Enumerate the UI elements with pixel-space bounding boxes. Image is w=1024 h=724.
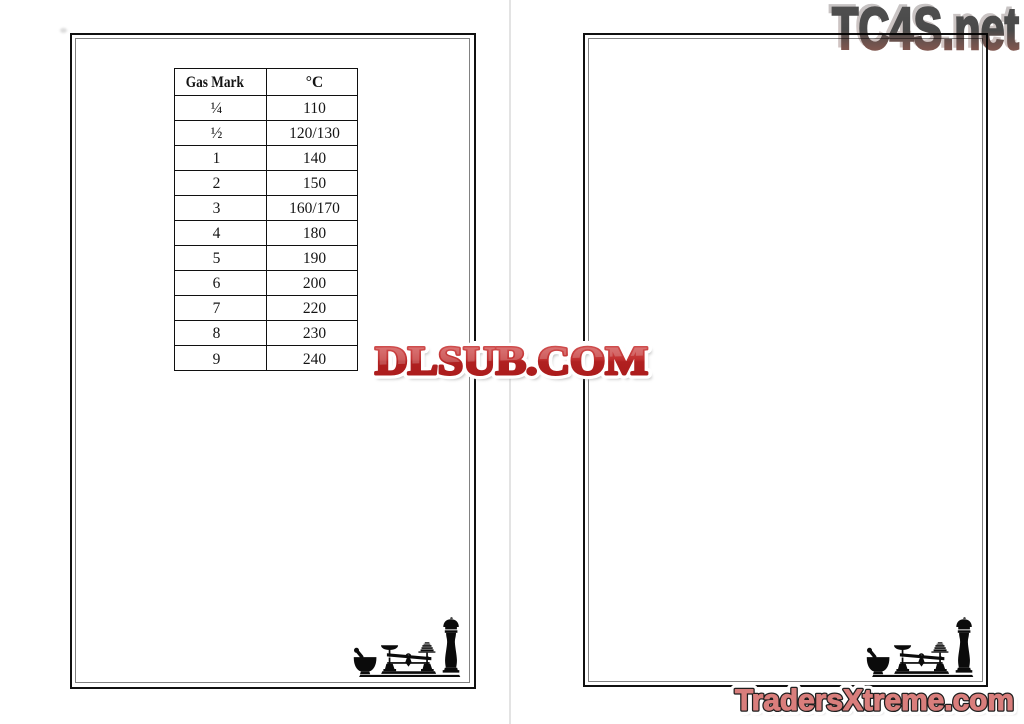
svg-text:TradersXtreme.com: TradersXtreme.com — [735, 684, 1014, 717]
svg-text:TC4S.net: TC4S.net — [832, 0, 1019, 60]
